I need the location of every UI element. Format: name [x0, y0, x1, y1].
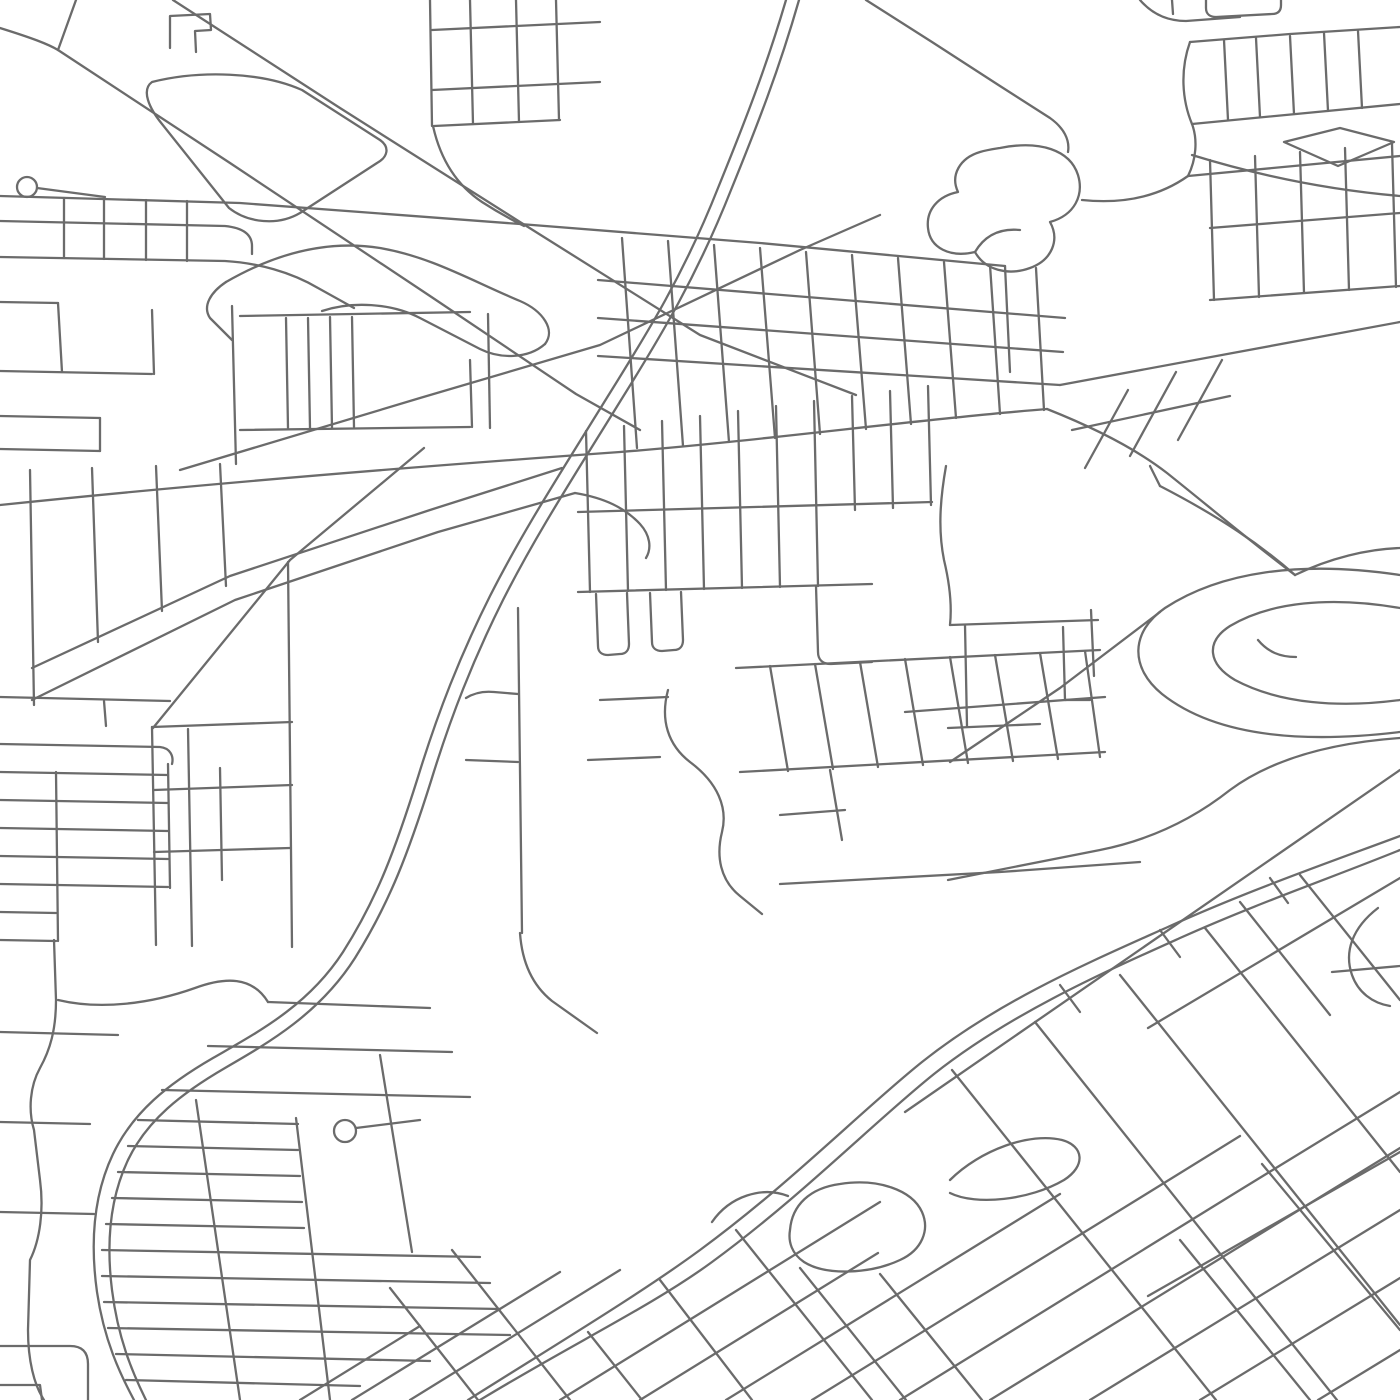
- road-path: [578, 502, 932, 512]
- road-path: [622, 238, 637, 448]
- road-path: [468, 836, 1400, 1400]
- road-path: [240, 312, 470, 316]
- road-path: [37, 188, 105, 197]
- road-path: [578, 584, 872, 592]
- road-path: [1210, 160, 1214, 300]
- road-path: [1332, 966, 1400, 972]
- road-path: [776, 406, 780, 587]
- road-path: [866, 0, 1068, 152]
- road-path: [852, 255, 866, 429]
- road-path: [0, 371, 152, 374]
- road-path: [1005, 266, 1010, 372]
- road-path: [1040, 653, 1058, 759]
- road-path: [944, 262, 956, 418]
- road-path: [352, 317, 354, 427]
- road-path: [480, 850, 1400, 1400]
- road-path: [975, 230, 1020, 252]
- road-path: [466, 692, 518, 698]
- road-path: [1180, 1240, 1310, 1400]
- road-path: [1138, 569, 1400, 737]
- road-path: [434, 120, 560, 126]
- road-path: [852, 396, 855, 510]
- road-path: [1200, 1278, 1400, 1400]
- road-path: [118, 1172, 300, 1176]
- road-path: [108, 1328, 510, 1335]
- road-path: [208, 1046, 452, 1052]
- road-path: [430, 0, 432, 126]
- road-path: [1256, 38, 1260, 117]
- road-path: [905, 770, 1400, 1112]
- cul-de-sac-circle: [334, 1120, 356, 1142]
- cul-de-sac-circle: [17, 177, 37, 197]
- road-path: [0, 28, 640, 430]
- road-path: [1358, 31, 1362, 108]
- road-path: [286, 318, 288, 428]
- road-path: [780, 862, 1140, 884]
- road-path: [518, 608, 522, 933]
- road-path: [300, 1326, 420, 1400]
- road-path: [995, 655, 1013, 761]
- road-path: [0, 449, 100, 451]
- road-path: [58, 0, 76, 50]
- road-path: [662, 421, 666, 590]
- road-path: [1213, 602, 1400, 704]
- road-path: [556, 0, 559, 120]
- road-path: [1120, 975, 1400, 1325]
- road-path: [330, 317, 332, 428]
- road-path: [112, 1198, 302, 1202]
- road-path: [1206, 0, 1281, 17]
- road-path: [1295, 548, 1400, 575]
- road-path: [1210, 213, 1400, 228]
- road-path: [665, 690, 762, 914]
- road-path: [990, 265, 1000, 414]
- road-path: [588, 757, 660, 760]
- road-path: [712, 1192, 788, 1222]
- road-path: [738, 411, 742, 588]
- road-path: [0, 940, 56, 941]
- road-path: [1349, 908, 1390, 1006]
- road-path: [154, 785, 292, 790]
- road-path: [0, 1346, 88, 1400]
- road-path: [0, 744, 173, 764]
- road-path: [598, 356, 1060, 385]
- road-path: [516, 0, 519, 122]
- road-path: [596, 593, 629, 655]
- road-path: [1150, 466, 1160, 486]
- road-path: [860, 662, 878, 767]
- road-path: [1082, 176, 1188, 201]
- road-path: [1188, 156, 1400, 176]
- road-path: [0, 302, 58, 303]
- road-path: [0, 856, 168, 859]
- road-path: [104, 701, 106, 726]
- road-path: [1140, 0, 1240, 21]
- road-path: [0, 416, 100, 418]
- road-path: [390, 1288, 478, 1400]
- road-path: [470, 360, 472, 427]
- road-path: [288, 562, 292, 947]
- road-path: [760, 248, 775, 438]
- road-path: [56, 772, 58, 941]
- road-path: [948, 738, 1400, 880]
- road-path: [0, 1032, 118, 1035]
- road-path: [102, 1250, 480, 1257]
- road-path: [650, 592, 683, 651]
- road-path: [106, 1224, 304, 1228]
- road-path: [0, 772, 168, 775]
- road-path: [1130, 372, 1176, 456]
- road-path: [1392, 144, 1396, 287]
- road-path: [0, 912, 56, 913]
- road-path: [890, 391, 893, 508]
- road-path: [0, 828, 168, 831]
- road-path: [700, 416, 704, 589]
- road-path: [640, 1253, 878, 1400]
- road-path: [0, 1122, 90, 1124]
- road-path: [770, 666, 788, 771]
- road-path: [380, 1055, 412, 1252]
- road-path: [116, 1354, 430, 1361]
- road-path: [352, 1272, 560, 1400]
- road-path: [520, 933, 597, 1033]
- road-path: [109, 0, 799, 1400]
- road-path: [162, 1090, 470, 1097]
- road-path: [600, 697, 668, 700]
- road-path: [1240, 902, 1330, 1015]
- road-path: [790, 1182, 926, 1271]
- road-path: [814, 401, 818, 586]
- road-path: [560, 1202, 880, 1400]
- road-path: [0, 221, 252, 254]
- road-path: [168, 764, 170, 888]
- road-path: [1172, 0, 1173, 14]
- road-path: [1060, 322, 1400, 385]
- road-path: [1262, 1164, 1400, 1330]
- road-path: [466, 760, 518, 762]
- road-path: [780, 810, 845, 815]
- road-path: [1072, 396, 1230, 430]
- road-path: [58, 981, 268, 1005]
- road-path: [575, 493, 649, 558]
- road-path: [226, 246, 549, 344]
- road-path: [30, 470, 34, 705]
- road-path: [173, 0, 856, 395]
- road-path: [1160, 486, 1295, 575]
- road-path: [816, 586, 872, 664]
- road-path: [32, 493, 575, 700]
- road-path: [58, 303, 62, 372]
- road-path: [308, 318, 310, 428]
- road-path: [726, 1194, 1060, 1400]
- road-path: [488, 314, 490, 428]
- road-path: [1190, 27, 1400, 42]
- road-path: [1255, 156, 1259, 297]
- road-path: [1258, 640, 1296, 657]
- road-path: [815, 664, 833, 769]
- road-path: [102, 1276, 490, 1283]
- road-path: [32, 468, 562, 668]
- road-path: [1300, 152, 1304, 293]
- road-path: [470, 0, 473, 124]
- road-path: [356, 1120, 420, 1128]
- road-path: [432, 82, 600, 90]
- road-path: [830, 770, 842, 840]
- road-path: [928, 145, 1080, 271]
- road-path: [940, 466, 950, 625]
- road-path: [1345, 148, 1349, 290]
- road-path: [1160, 930, 1180, 957]
- road-path: [1324, 33, 1328, 111]
- road-path: [220, 768, 222, 880]
- road-path: [588, 1332, 642, 1400]
- road-path: [152, 722, 292, 727]
- road-path: [736, 650, 1100, 668]
- road-path: [0, 257, 354, 308]
- road-path: [1290, 36, 1294, 114]
- road-path: [207, 282, 232, 340]
- road-path: [928, 386, 931, 505]
- road-path: [152, 727, 156, 945]
- road-path: [0, 884, 168, 887]
- road-path: [1036, 268, 1044, 410]
- road-path: [950, 620, 1098, 625]
- road-path: [104, 1302, 500, 1309]
- road-path: [0, 1212, 94, 1214]
- road-path: [156, 466, 162, 611]
- road-path: [1192, 155, 1400, 196]
- road-path: [147, 74, 387, 221]
- roads-layer: [0, 0, 1400, 1400]
- road-path: [94, 0, 786, 1400]
- road-path: [0, 196, 1005, 266]
- road-path: [138, 1120, 298, 1124]
- street-map-svg: [0, 0, 1400, 1400]
- road-path: [736, 1230, 872, 1400]
- road-path: [152, 310, 154, 374]
- road-path: [188, 729, 192, 946]
- road-path: [232, 306, 236, 464]
- road-path: [128, 1146, 298, 1150]
- road-path: [452, 1250, 570, 1400]
- road-path: [965, 625, 967, 726]
- map-viewport: [0, 0, 1400, 1400]
- road-path: [1224, 40, 1228, 120]
- road-path: [0, 1385, 42, 1400]
- road-path: [0, 697, 170, 701]
- road-path: [0, 800, 168, 803]
- road-path: [1192, 104, 1400, 124]
- road-path: [1300, 875, 1400, 1000]
- road-path: [28, 940, 56, 1400]
